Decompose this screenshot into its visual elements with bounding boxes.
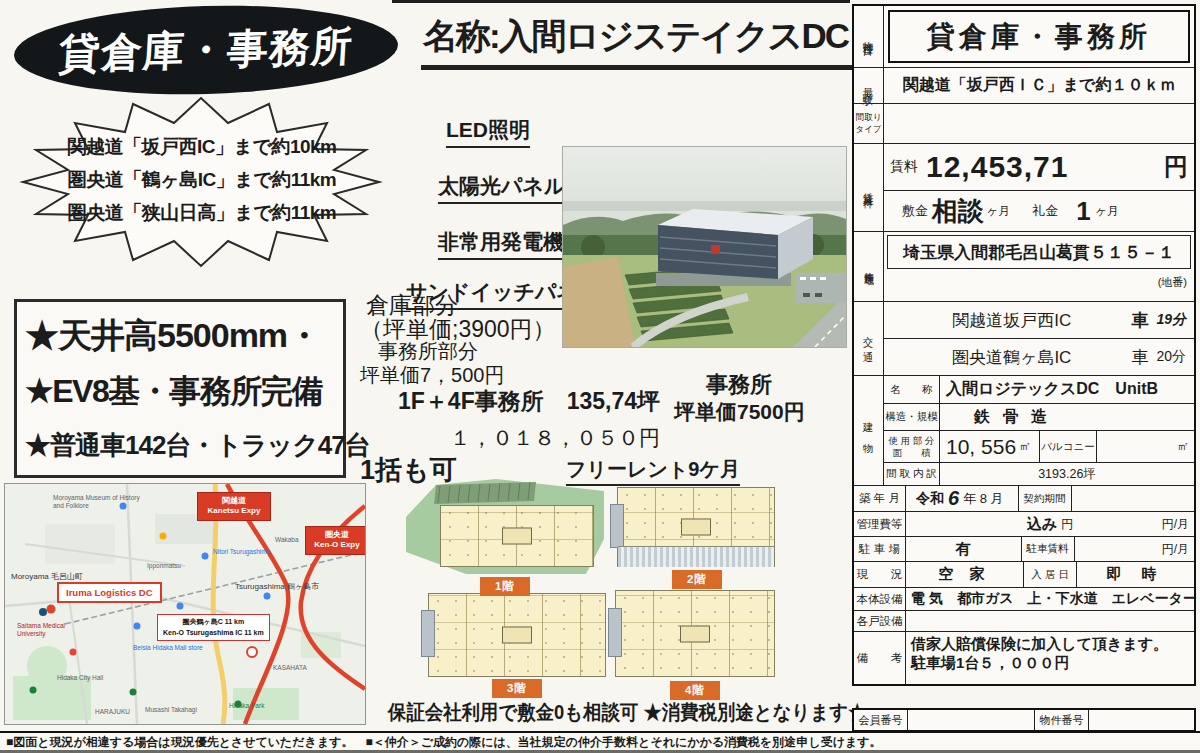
highlights-box: ★天井高5500mm・ ★EV8基・事務所完備 ★普通車142台・トラック47台 (14, 299, 346, 478)
map-label-tsurugashima: Tsurugashima 鶴ヶ島市 (235, 582, 319, 592)
row-layout-type: 間取り タイプ (854, 104, 1194, 144)
map-label-musashi-takahagi: Musashi Takahagi (145, 706, 197, 714)
label-building-name: 名 称 (884, 376, 940, 403)
floor-plan-3f (428, 593, 606, 677)
label-location: 物件所在地 (854, 232, 884, 301)
value-parking: 有 (906, 540, 1021, 559)
unit-parking-fee: 円/月 (1075, 541, 1195, 558)
row-management-fee: 管理費等 込み 円 円/月 (854, 512, 1194, 537)
label-parking-fee: 駐車賃料 (1021, 537, 1075, 561)
property-flyer-page: 貸倉庫・事務所 関越道「坂戸西IC」まで約10km 圏央道「鶴ヶ島IC」まで約1… (0, 0, 1200, 753)
subrow-deposit: 敷金 相談 ヶ月 礼金 1 ヶ月 (884, 191, 1194, 231)
map-label-kasahata: KASAHATA (273, 664, 307, 672)
subrow-access-1: 関越道坂戸西IC 車 19分 (884, 302, 1194, 339)
row-rent-terms: 賃貸条件 賃料 12,453,71 円 敷金 相談 ヶ月 礼金 1 ヶ月 (854, 144, 1194, 232)
title-badge: 貸倉庫・事務所 (13, 1, 399, 100)
label-station: 最寄駅 (854, 68, 884, 103)
row-station: 最寄駅 関越道「坂戸西ＩＣ」まで約１０ｋｍ (854, 68, 1194, 104)
value-management-fee: 込み (1027, 515, 1057, 534)
unit-management-fee: 円/月 (1073, 516, 1189, 533)
value-building-name: 入間ロジテックスDC UnitB (940, 379, 1158, 400)
burst-line-1: 関越道「坂戸西IC」まで約10km (16, 130, 388, 163)
floor-badge-1f: 1階 (480, 577, 530, 596)
floor-plan-core (680, 625, 710, 642)
value-built-year: 6 (948, 487, 959, 510)
dock-block (421, 610, 435, 657)
access-burst: 関越道「坂戸西IC」まで約10km 圏央道「鶴ヶ島IC」まで約11km 圏央道「… (16, 94, 388, 272)
kanetsu-expressway-badge: 関越道 Kanetsu Expy (197, 492, 271, 521)
burst-line-2: 圏央道「鶴ヶ島IC」まで約11km (16, 163, 388, 196)
value-property-type: 貸倉庫・事務所 (888, 10, 1190, 63)
office-side-price: 坪単価7500円 (674, 398, 805, 426)
title-badge-text: 貸倉庫・事務所 (57, 18, 354, 81)
row-unit-facilities: 各戸設備 (854, 611, 1194, 632)
floor-plan-2f (617, 487, 775, 567)
row-facilities: 本体設備 電 気 都市ガス 上・下水道 エレベーター (854, 588, 1194, 611)
value-rent: 12,453,71 (926, 150, 1068, 184)
map-label-beisia: Beisia Hidaka Mall store (133, 644, 203, 652)
value-property-no-empty (1089, 710, 1194, 730)
value-built-rest: 年 8 月 (963, 490, 1003, 508)
label-management-fee: 管理費等 (854, 512, 906, 536)
value-member-no-empty (908, 710, 1035, 730)
label-deposit: 敷金 (902, 202, 928, 220)
floor-badge-2f: 2階 (672, 570, 722, 589)
map-label-harajuku: HARAJUKU (95, 708, 130, 716)
value-floor-area: 10, 556 (940, 435, 1016, 459)
row-remarks: 備 考 借家人賠償保険に加入して頂きます。 駐車場1台５，０００円 (854, 632, 1194, 684)
row-current-status: 現 況 空 家 入 居 日 即 時 (854, 562, 1194, 588)
unit-floor-area: ㎡ (1019, 438, 1031, 455)
value-built-era: 令和 (916, 490, 944, 508)
map-label-hidaka-park: Hidaka Park (229, 702, 264, 710)
label-balcony: バルコニー (1039, 431, 1097, 462)
map-label-nitori: Nitori Tsurugashima (213, 548, 270, 556)
row-property-type: 物件種目 貸倉庫・事務所 (854, 6, 1194, 68)
value-management-yen: 円 (1061, 516, 1073, 533)
value-structure: 鉄 骨 造 (940, 407, 1051, 428)
row-location: 物件所在地 埼玉県入間郡毛呂山葛貫５１５－１ (地番) (854, 232, 1194, 302)
access2-mode: 車 (1131, 346, 1148, 369)
label-key-money: 礼金 (1032, 202, 1058, 220)
footer-disclaimer: ■図面と現況が相違する場合は現況優先とさせていただきます。 ■＜仲介＞ご成約の際… (0, 731, 1200, 752)
value-current-status: 空 家 (906, 565, 1023, 584)
label-access: 交通 (854, 302, 884, 375)
floor-plan-2f-deck (618, 546, 774, 567)
unit-balcony: ㎡ (1097, 438, 1194, 455)
row-parking: 駐 車 場 有 駐車賃料 円/月 (854, 537, 1194, 562)
office-part-title: 事務所部分 (378, 338, 478, 365)
floor-badge-3f: 3階 (492, 679, 542, 698)
kanetsu-badge-jp: 関越道 (222, 496, 246, 505)
interchange-marker (247, 647, 257, 657)
floor-plan-1f-outline (440, 505, 594, 567)
scan-top-edge (392, 0, 850, 3)
row-access: 交通 関越道坂戸西IC 車 19分 圏央道鶴ヶ島IC 車 20分 (854, 302, 1194, 376)
value-key-money: 1 (1076, 196, 1090, 227)
label-member-no: 会員番号 (854, 710, 908, 730)
row-built-date: 築 年 月 令和 6 年 8 月 契約期間 (854, 486, 1194, 512)
subrow-building-name: 名 称 入間ロジテックスDC UnitB (884, 376, 1194, 404)
label-rent-terms: 賃貸条件 (854, 144, 884, 231)
label-remarks: 備 考 (854, 632, 906, 684)
label-property-type: 物件種目 (854, 6, 884, 67)
value-facilities: 電 気 都市ガス 上・下水道 エレベーター (906, 590, 1197, 608)
label-facilities: 本体設備 (854, 588, 906, 610)
keno-expressway-badge: 圏央道 Ken-O Expy (305, 526, 366, 555)
floor-plan-4f (615, 590, 775, 677)
subrow-structure: 構造・規模 鉄 骨 造 (884, 404, 1194, 431)
feature-led: LED照明 (446, 116, 530, 148)
access1-name: 関越道坂戸西IC (892, 309, 1131, 332)
office-side-title: 事務所 (706, 370, 772, 400)
subrow-layout-detail: 間 取 内 訳 3193.26坪 (884, 463, 1194, 485)
keno-badge-en: Ken-O Expy (314, 540, 359, 549)
floor-plan-core (681, 519, 711, 536)
area-map: 関越道 Kanetsu Expy 圏央道 Ken-O Expy Iruma Lo… (4, 483, 366, 725)
row-member-property-no: 会員番号 物件番号 (852, 708, 1196, 732)
dock-block (610, 504, 624, 549)
subrow-rent: 賃料 12,453,71 円 (884, 144, 1194, 191)
distance-line-en: Ken-O Tsurugashima IC 11 km (163, 629, 264, 636)
keno-badge-jp: 圏央道 (325, 530, 349, 539)
burst-line-3: 圏央道「狭山日高」まで約11km (16, 196, 388, 229)
feature-generator: 非常用発電機 (438, 228, 564, 260)
highlight-ceiling: ★天井高5500mm・ (25, 307, 343, 363)
label-current-status: 現 況 (854, 562, 906, 587)
value-layout-detail: 3193.26坪 (940, 466, 1194, 483)
value-unit-facilities-empty (906, 611, 1194, 631)
value-layout-type-empty (884, 104, 1194, 143)
map-label-hidaka-city-hall: Hidaka City Hall (57, 674, 103, 682)
floor-plan-core (502, 627, 532, 644)
label-floor-area: 使 用 部 分 面 積 (884, 431, 940, 462)
label-rent: 賃料 (890, 158, 918, 176)
map-label-ipponmatsu: Ipponmatsu (147, 562, 181, 570)
value-address-note: (地番) (887, 269, 1191, 290)
floor-plan-core (502, 528, 532, 545)
unit-key-money: ヶ月 (1095, 203, 1119, 220)
floor-plan-1f (406, 477, 604, 574)
value-address: 埼玉県入間郡毛呂山葛貫５１５－１ (887, 235, 1191, 269)
label-contract-period: 契約期間 (1018, 486, 1072, 511)
subrow-floor-area: 使 用 部 分 面 積 10, 556 ㎡ バルコニー ㎡ (884, 431, 1194, 463)
map-label-museum: Moroyama Museum of History and Folklore (53, 494, 145, 510)
access1-mode: 車 (1131, 309, 1148, 332)
feature-solar: 太陽光パネル (438, 172, 565, 204)
guarantee-note: 保証会社利用で敷金0も相談可 ★消費税別途となります★ (388, 699, 866, 726)
distance-line-jp: 圏央鶴ヶ島C 11 km (182, 618, 244, 625)
highlight-parking: ★普通車142台・トラック47台 (25, 419, 343, 471)
label-layout-detail: 間 取 内 訳 (884, 463, 940, 485)
row-building: 建物 名 称 入間ロジテックスDC UnitB 構造・規模 鉄 骨 造 使 用 … (854, 376, 1194, 486)
map-label-moroyama: Moroyama 毛呂山町 (11, 572, 83, 582)
label-built-date: 築 年 月 (854, 486, 906, 511)
unit-rent: 円 (1164, 151, 1188, 183)
building-photo (562, 146, 847, 348)
distance-callout: 圏央鶴ヶ島C 11 km Ken-O Tsurugashima IC 11 km (157, 614, 270, 641)
property-marker-label: Iruma Logistics DC (57, 582, 162, 603)
label-structure: 構造・規模 (884, 404, 940, 430)
dock-block (608, 608, 622, 657)
label-unit-facilities: 各戸設備 (854, 611, 906, 631)
property-detail-table: 物件種目 貸倉庫・事務所 最寄駅 関越道「坂戸西ＩＣ」まで約１０ｋｍ 間取り タ… (852, 4, 1196, 686)
value-deposit: 相談 (932, 194, 984, 229)
map-graphic (5, 484, 365, 724)
unit-deposit: ヶ月 (986, 203, 1010, 220)
map-label-wakaba: Wakaba (275, 536, 299, 544)
access1-time: 19分 (1156, 311, 1186, 329)
label-building: 建物 (854, 376, 884, 485)
value-remarks-2: 駐車場1台５，０００円 (911, 654, 1189, 673)
access2-name: 圏央道鶴ヶ島IC (892, 346, 1131, 369)
label-property-no: 物件番号 (1035, 710, 1089, 730)
subrow-access-2: 圏央道鶴ヶ島IC 車 20分 (884, 339, 1194, 375)
property-location-dot (47, 605, 56, 614)
label-move-in: 入 居 日 (1023, 562, 1077, 587)
access-burst-lines: 関越道「坂戸西IC」まで約10km 圏央道「鶴ヶ島IC」まで約11km 圏央道「… (16, 130, 388, 229)
access2-time: 20分 (1156, 348, 1186, 366)
value-station: 関越道「坂戸西ＩＣ」まで約１０ｋｍ (903, 75, 1176, 96)
property-name-title: 名称:入間ロジステイクスDC (421, 13, 854, 70)
floor-badge-4f: 4階 (670, 681, 720, 700)
kanetsu-badge-en: Kanetsu Expy (208, 506, 261, 515)
office-price-total: １，０１８，０５０円 (450, 424, 660, 452)
value-move-in: 即 時 (1077, 565, 1194, 584)
office-floor-area: 1F＋4F事務所 135,74坪 (398, 386, 660, 417)
highlight-elevators: ★EV8基・事務所完備 (25, 363, 343, 419)
label-parking: 駐 車 場 (854, 537, 906, 561)
map-label-saitama-medical: Saitama Medical University (17, 622, 87, 638)
value-remarks-1: 借家人賠償保険に加入して頂きます。 (911, 635, 1189, 654)
office-unit-price: 坪単価7，500円 (360, 362, 505, 389)
label-layout-type: 間取り タイプ (854, 104, 884, 143)
